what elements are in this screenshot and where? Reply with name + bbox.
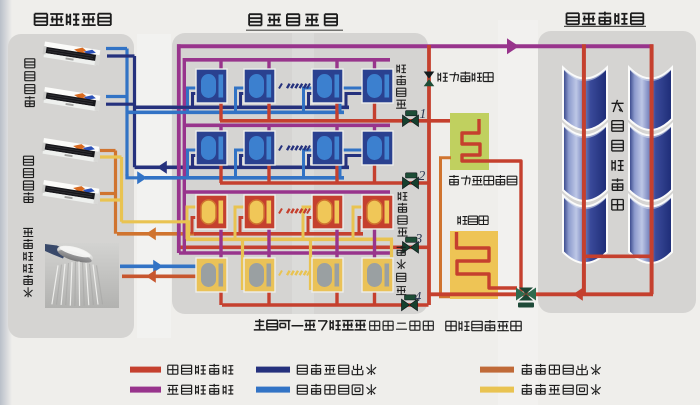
- svg-text:1: 1: [420, 106, 427, 121]
- svg-text:3: 3: [415, 231, 423, 246]
- svg-text:2: 2: [419, 168, 426, 183]
- svg-text:4: 4: [415, 289, 422, 304]
